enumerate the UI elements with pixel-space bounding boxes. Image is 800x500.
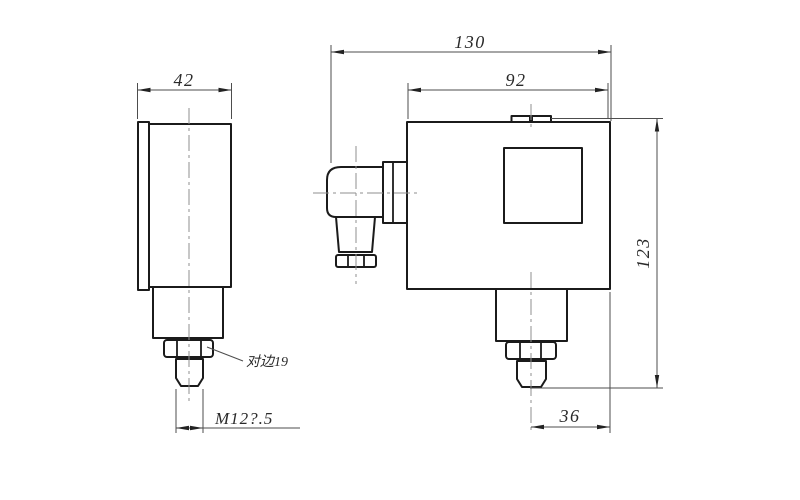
dim-body-width: 92 bbox=[408, 70, 608, 119]
dim-130-arrow-right bbox=[598, 50, 611, 54]
dim-92-arrow-left bbox=[408, 88, 421, 92]
dim-36-label: 36 bbox=[559, 406, 581, 426]
dim-123-arrow-top bbox=[655, 119, 659, 132]
dim-130-label: 130 bbox=[454, 32, 486, 52]
side-view bbox=[138, 108, 231, 402]
dim-92-label: 92 bbox=[506, 70, 527, 90]
drawing-canvas: 42 130 92 123 bbox=[0, 0, 800, 500]
dim-36-arrow-left bbox=[531, 425, 544, 429]
side-view-port-block bbox=[153, 287, 223, 338]
side-view-bezel-flange bbox=[138, 122, 149, 290]
dim-port-offset: 36 bbox=[531, 292, 610, 433]
connector-housing bbox=[327, 167, 383, 217]
dimensions: 42 130 92 123 bbox=[138, 32, 664, 433]
dim-across-flats: 对边19 bbox=[207, 347, 288, 370]
dim-thread-arrow-left bbox=[176, 426, 189, 430]
dim-130-arrow-left bbox=[331, 50, 344, 54]
side-view-body bbox=[149, 124, 231, 287]
dim-42-label: 42 bbox=[174, 70, 195, 90]
front-view-window bbox=[504, 148, 582, 223]
dim-front-width: 42 bbox=[138, 70, 232, 119]
dim-92-arrow-right bbox=[595, 88, 608, 92]
dim-42-arrow-right bbox=[219, 88, 232, 92]
across-flats-label: 对边19 bbox=[246, 354, 288, 370]
dim-123-label: 123 bbox=[633, 237, 653, 269]
dim-thread-spec: M12?.5 bbox=[176, 389, 300, 433]
dim-thread-label: M12?.5 bbox=[214, 409, 273, 428]
front-view-top-tab-right bbox=[532, 116, 551, 122]
front-view-top-tab-left bbox=[512, 116, 531, 122]
dim-123-arrow-bottom bbox=[655, 375, 659, 388]
dim-overall-height: 123 bbox=[530, 119, 663, 389]
front-view bbox=[313, 104, 610, 433]
dim-42-arrow-left bbox=[138, 88, 151, 92]
dim-36-arrow-right bbox=[597, 425, 610, 429]
pressure-switch-dimensional-drawing: 42 130 92 123 bbox=[0, 0, 800, 500]
dim-overall-width: 130 bbox=[331, 32, 611, 163]
dim-thread-arrow-right bbox=[190, 426, 203, 430]
